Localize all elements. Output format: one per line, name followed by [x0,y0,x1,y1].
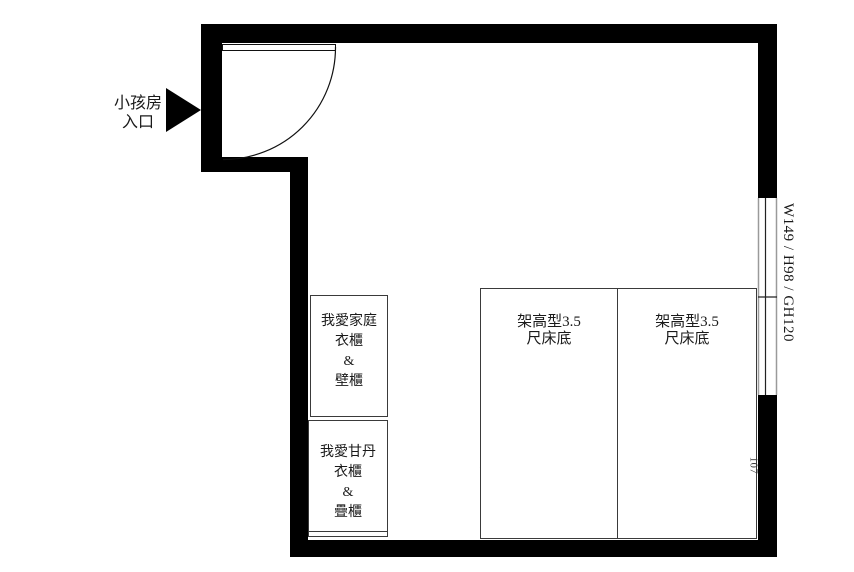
bed-2-label: 架高型3.5 尺床底 [618,314,756,348]
entrance-label: 小孩房 入口 [106,94,170,132]
cabinet-1-label: 我愛家庭 衣櫃 & 壁櫃 [311,296,387,432]
entrance-label-line1: 小孩房 [106,94,170,113]
bed-1-label-line2: 尺床底 [481,331,617,348]
bed-1: 架高型3.5 尺床底 [480,288,618,539]
cabinet-1-line3: & [344,352,355,372]
cabinet-2-line3: & [343,483,354,503]
cabinet-2: 我愛甘丹 衣櫃 & 疊櫃 [308,420,388,537]
bed-1-label: 架高型3.5 尺床底 [481,314,617,348]
window-dimension-annotation: W149 / H98 / GH120 [779,203,796,403]
cabinet-2-line2: 衣櫃 [334,463,362,483]
entrance-label-line2: 入口 [106,113,170,132]
door-leaf [223,45,336,51]
cabinet-2-label: 我愛甘丹 衣櫃 & 疊櫃 [309,421,387,558]
cabinet-2-base-line [309,531,387,532]
bed-offset-dimension: 107 [748,453,759,479]
cabinet-1-line4: 壁櫃 [335,372,363,392]
bed-2-label-line2: 尺床底 [618,331,756,348]
bed-1-label-line1: 架高型3.5 [481,314,617,331]
cabinet-1: 我愛家庭 衣櫃 & 壁櫃 [310,295,388,417]
floor-plan: 小孩房 入口 我愛家庭 衣櫃 & 壁櫃 我愛甘丹 衣櫃 & 疊櫃 架高型3.5 … [0,0,854,572]
cabinet-2-line4: 疊櫃 [334,503,362,523]
bed-2: 架高型3.5 尺床底 [617,288,757,539]
window-right [758,198,777,395]
door-swing-arc [223,47,336,160]
entrance-arrow-icon [166,88,201,132]
cabinet-1-line1: 我愛家庭 [321,312,377,332]
cabinet-1-line2: 衣櫃 [335,332,363,352]
cabinet-2-line1: 我愛甘丹 [320,443,376,463]
bed-2-label-line1: 架高型3.5 [618,314,756,331]
